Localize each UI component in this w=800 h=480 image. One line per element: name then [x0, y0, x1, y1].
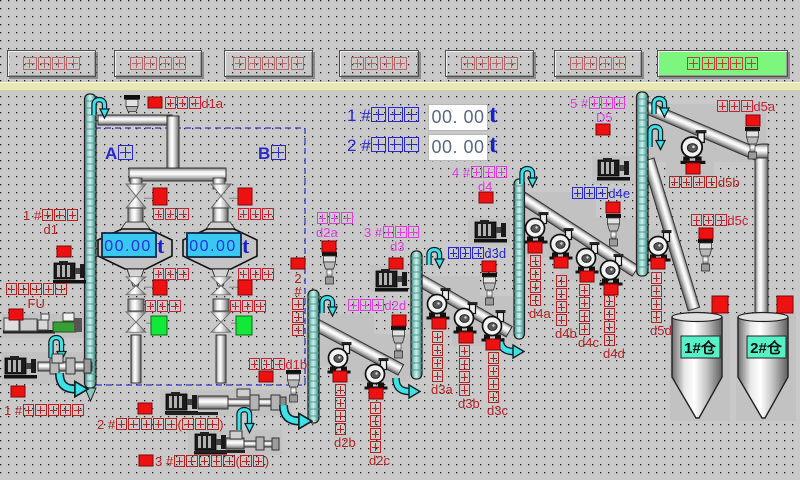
svg-text:1#仓: 1#仓	[684, 339, 717, 357]
svg-text:2#仓: 2#仓	[750, 339, 783, 357]
svg-text:00.00: 00.00	[104, 238, 152, 255]
svg-text:00.00: 00.00	[189, 238, 237, 255]
